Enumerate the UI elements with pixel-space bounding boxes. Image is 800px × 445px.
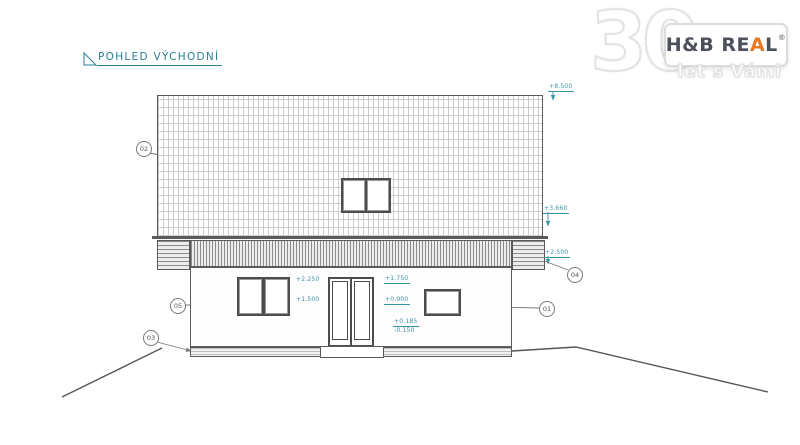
window-left	[237, 277, 290, 316]
registered-mark-icon: ®	[778, 33, 787, 42]
terrain-line-right	[512, 347, 768, 392]
roof-tiled-surface	[157, 95, 543, 237]
callout-eaves: 04	[567, 267, 583, 283]
leader-callout-plinth	[157, 342, 191, 351]
roof-overhang-right	[512, 240, 545, 270]
drawing-title: POHLED VÝCHODNÍ	[97, 51, 222, 66]
eaves-soffit-band	[190, 240, 512, 267]
callout-plinth: 03	[143, 330, 159, 346]
level-ridge: +8.500	[548, 83, 574, 92]
level-window-head: +2.250	[295, 276, 321, 284]
logo-brand-box: H&B REAL®	[664, 23, 788, 67]
logo-tagline: let s Vámi	[677, 62, 782, 82]
window-left-pane-2	[265, 279, 288, 314]
level-small-window-head: +1.750	[384, 275, 410, 284]
door-leaf-right	[352, 279, 372, 345]
title-flag-icon	[84, 53, 96, 65]
terrain-line-left	[62, 348, 162, 397]
level-window-sill: +1.500	[295, 296, 321, 304]
roof-window-pane-right	[367, 180, 389, 211]
door-glass-right	[354, 281, 370, 340]
roof-window-pane-left	[343, 180, 365, 211]
door-leaf-left	[330, 279, 350, 345]
door-glass-left	[332, 281, 348, 340]
eaves-fascia	[152, 236, 548, 239]
logo-brand-accent-letter: A	[750, 34, 765, 56]
level-roof-mid: +3.660	[543, 205, 569, 214]
entry-step	[320, 346, 384, 358]
window-small-pane	[426, 291, 459, 314]
callout-facade: 05	[170, 298, 186, 314]
roof-window	[341, 178, 391, 213]
logo-brand-prefix: H&B RE	[666, 34, 750, 56]
entry-door	[328, 277, 374, 347]
window-left-pane-1	[239, 279, 262, 314]
window-small	[424, 289, 461, 316]
level-terrain: -0.150	[393, 327, 417, 335]
roof-overhang-left	[157, 240, 190, 270]
level-floor: +0.185	[393, 318, 419, 327]
level-eaves: +2.500	[544, 249, 570, 258]
logo-brand-suffix: L	[765, 34, 778, 56]
callout-wall: 01	[539, 301, 555, 317]
callout-roof: 02	[136, 141, 152, 157]
level-small-window-sill: +0.900	[384, 296, 410, 305]
logo-brand-text: H&B REAL®	[666, 34, 787, 56]
elevation-drawing: POHLED VÝCHODNÍ +8.500 +3.660 +2.500 +2.…	[0, 0, 800, 445]
